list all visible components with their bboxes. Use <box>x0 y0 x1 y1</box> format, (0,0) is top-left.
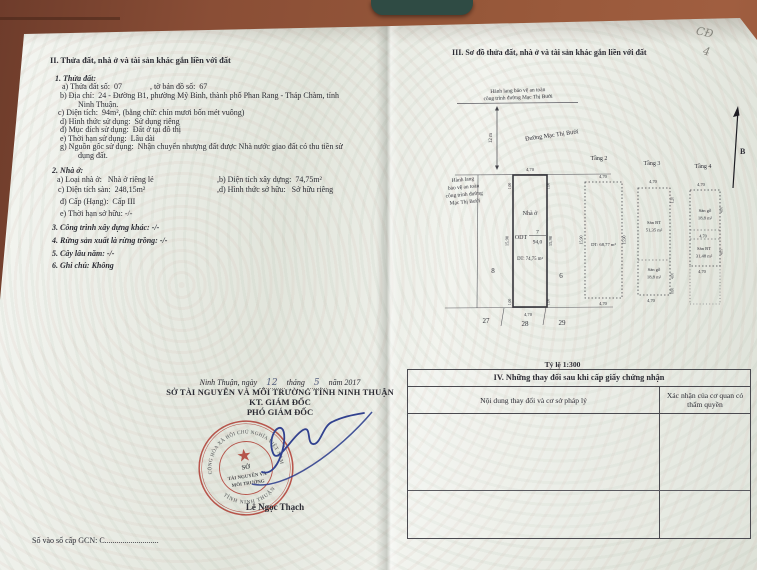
road-width-dimension: 12 m <box>489 106 499 170</box>
svg-text:Hành lang: Hành lang <box>452 176 475 184</box>
svg-text:1,00: 1,00 <box>547 299 552 306</box>
agency-name: SỞ TÀI NGUYÊN VÀ MÔI TRƯỜNG TỈNH NINH TH… <box>135 388 425 397</box>
svg-text:4,70: 4,70 <box>698 269 706 275</box>
corridor-note-top: Hành lang bảo vệ an toàn công trình đườn… <box>483 87 553 102</box>
svg-text:18,8 m²: 18,8 m² <box>647 275 662 281</box>
floor2-outline <box>585 182 622 298</box>
floor4-name: Tầng 4 <box>695 163 712 170</box>
svg-text:0,60: 0,60 <box>671 288 676 294</box>
changes-table-row-divider <box>408 490 750 491</box>
floor2-area: DT: 68,77 m² <box>591 242 616 248</box>
changes-table-header: Nội dung thay đổi và cơ sở pháp lý Xác n… <box>408 387 750 414</box>
neighbor-right: 6 <box>559 272 563 280</box>
pencil-note-2: 4 <box>702 44 712 58</box>
neighbor-bottom-1: 27 <box>483 317 491 325</box>
floor2-name: Tầng 2 <box>591 155 608 162</box>
floor3-name: Tầng 3 <box>644 160 661 167</box>
north-arrow-icon: B <box>733 106 746 188</box>
parcel-depth-right: 15,90 <box>548 235 554 246</box>
photo-of-land-certificate: II. Thửa đất, nhà ở và tài sản khác gắn … <box>0 0 757 570</box>
house-built-area-line: ,b) Diện tích xây dựng: 74,75m² <box>217 175 322 184</box>
neighbor-bottom-2: 28 <box>522 320 530 328</box>
house-grade-line: đ) Cấp (Hạng): Cấp III <box>60 197 135 206</box>
center-fold <box>376 20 400 570</box>
north-label: B <box>740 147 746 156</box>
svg-text:15,90: 15,90 <box>579 236 585 245</box>
note-line: 6. Ghi chú: Không <box>52 261 114 270</box>
changes-table-col1-header: Nội dung thay đổi và cơ sở pháp lý <box>408 387 660 413</box>
changes-table-body <box>408 414 750 538</box>
neighbor-left: 8 <box>491 267 495 275</box>
parcel-width-top: 4,70 <box>526 167 535 173</box>
section-iii-title: III. Sơ đồ thửa đất, nhà ở và tài sản kh… <box>452 48 647 57</box>
certificate-paper: II. Thửa đất, nhà ở và tài sản khác gắn … <box>0 0 757 570</box>
corridor-boundary-line <box>457 103 578 104</box>
floor3-side-dims: 1,20 4,00 0,60 <box>671 197 676 294</box>
land-purpose-line: đ) Mục đích sử dụng: Đất ở tại đô thị <box>60 125 181 134</box>
date-place: Ninh Thuận, ngày <box>200 378 258 387</box>
parcel-house-label: Nhà ở <box>523 211 538 217</box>
svg-text:1,00: 1,00 <box>547 183 552 190</box>
svg-text:31,48 m²: 31,48 m² <box>696 254 713 260</box>
parcel-number: 7 <box>536 230 539 236</box>
signer-name: Lê Ngọc Thạch <box>200 502 350 512</box>
land-parcel-number-line: a) Thửa đất số: 07 , tờ bản đồ số: 67 <box>62 82 207 91</box>
svg-text:15,90: 15,90 <box>622 236 628 245</box>
parcel-corner-dims: 1,00 1,00 1,00 1,00 <box>508 183 552 306</box>
parcel-use-code: ODT <box>515 235 528 241</box>
svg-text:4,05: 4,05 <box>720 249 725 255</box>
svg-text:Sàn gỗ: Sàn gỗ <box>648 267 661 272</box>
dark-object-on-floor <box>371 0 473 15</box>
parcel-depth-left: 15,90 <box>505 235 511 246</box>
land-address-line1: b) Địa chỉ: 24 - Đường B1, phường Mỹ Bìn… <box>60 91 339 100</box>
neighbor-bottom-3: 29 <box>559 319 567 327</box>
parcel-area: 94,0 <box>533 240 543 246</box>
land-origin-line2: dụng đất. <box>78 151 108 160</box>
svg-text:18,8 m²: 18,8 m² <box>698 216 713 222</box>
street-name-label: Đường Mạc Thị Bưởi <box>525 128 580 142</box>
changes-table-title: IV. Những thay đổi sau khi cấp giấy chứn… <box>408 370 750 387</box>
svg-text:4,70: 4,70 <box>647 298 655 304</box>
cadastral-diagram: Hành lang bảo vệ an toàn công trình đườn… <box>400 80 757 370</box>
house-heading: 2. Nhà ở: <box>52 166 83 175</box>
svg-text:12 m: 12 m <box>489 133 494 143</box>
svg-text:1,20: 1,20 <box>671 197 676 203</box>
changes-table-col2-header: Xác nhận của cơ quan có thẩm quyền <box>660 387 750 413</box>
svg-text:4,70: 4,70 <box>599 301 607 307</box>
land-area-line: c) Diện tích: 94m², (bằng chữ: chín mươi… <box>58 108 244 117</box>
svg-text:4,70: 4,70 <box>699 234 706 240</box>
director-signature <box>246 406 378 500</box>
land-origin-line1: g) Nguồn gốc sử dụng: Nhận chuyển nhượng… <box>60 142 343 151</box>
floor-tile-groove <box>0 17 120 20</box>
date-year: năm 2017 <box>329 378 361 387</box>
svg-text:Sàn BT: Sàn BT <box>647 220 661 225</box>
section-ii-title: II. Thửa đất, nhà ở và tài sản khác gắn … <box>50 56 231 65</box>
date-month-word: tháng <box>287 378 305 387</box>
svg-text:4,00: 4,00 <box>671 273 676 279</box>
changes-table-column-divider <box>659 414 660 538</box>
svg-text:4,70: 4,70 <box>599 174 607 180</box>
svg-text:4,70: 4,70 <box>649 179 657 185</box>
svg-text:4,00: 4,00 <box>720 207 725 213</box>
house-floor-area-line: c) Diện tích sàn: 248,15m² <box>58 185 145 194</box>
perennial-line: 5. Cây lâu năm: -/- <box>52 249 114 258</box>
parcel-built-area: DT: 74,75 m² <box>517 256 543 262</box>
svg-text:Sàn BT: Sàn BT <box>697 246 711 251</box>
house-term-line: e) Thời hạn sở hữu: -/- <box>60 209 132 218</box>
forest-line: 4. Rừng sản xuất là rừng trồng: -/- <box>52 236 167 245</box>
map-scale-label: Tỷ lệ 1:300 <box>505 360 620 369</box>
signature-flourish <box>252 412 372 485</box>
parcel-width-bottom: 4,70 <box>524 312 533 318</box>
svg-text:Mạc Thị Bưởi: Mạc Thị Bưởi <box>449 198 480 207</box>
signature-stroke <box>262 413 364 473</box>
other-construction-line: 3. Công trình xây dựng khác: -/- <box>52 223 159 232</box>
floor4-plan: Tầng 4 4,70 Sàn gỗ 18,8 m² 4,70 Sàn BT 3… <box>690 163 725 304</box>
svg-text:4,70: 4,70 <box>697 182 705 188</box>
svg-text:công trình đường Mạc Thị Bưởi: công trình đường Mạc Thị Bưởi <box>483 94 553 102</box>
gcn-register-number-line: Số vào sổ cấp GCN: C....................… <box>32 536 159 545</box>
floor3-plan: Tầng 3 4,70 Sàn BT 51,35 m² Sàn gỗ 18,8 … <box>638 160 676 304</box>
floor2-plan: Tầng 2 4,70 15,90 15,90 DT: 68,77 m² 4,7… <box>579 155 628 307</box>
svg-text:Sàn gỗ: Sàn gỗ <box>699 208 712 213</box>
changes-table: IV. Những thay đổi sau khi cấp giấy chứn… <box>407 369 751 539</box>
date-line: Ninh Thuận, ngày 12 tháng 5 năm 2017 <box>135 378 425 388</box>
svg-text:51,35 m²: 51,35 m² <box>646 228 663 234</box>
house-ownership-line: ,d) Hình thức sở hữu: Sở hữu riêng <box>217 185 333 194</box>
house-type-line: a) Loại nhà ở: Nhà ở riêng lẻ <box>57 175 154 184</box>
